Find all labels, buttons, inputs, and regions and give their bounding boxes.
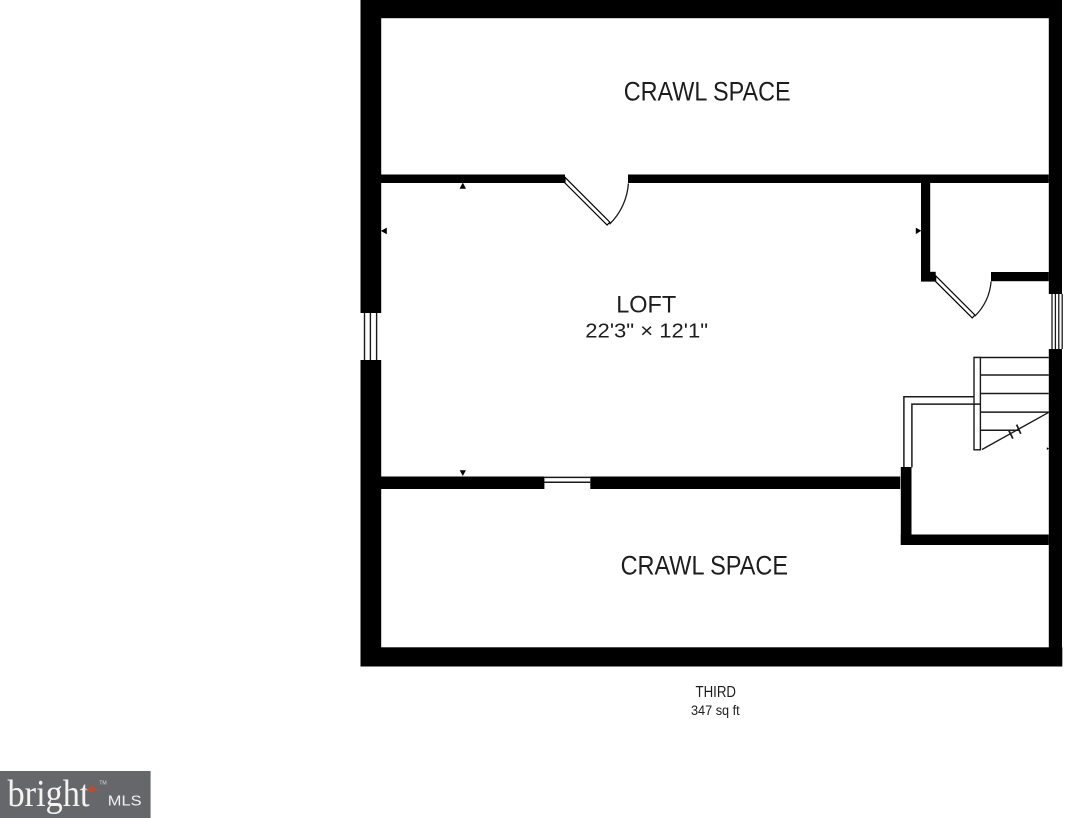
svg-text:347 sq ft: 347 sq ft: [691, 703, 740, 718]
svg-text:CRAWL SPACE: CRAWL SPACE: [624, 77, 791, 107]
svg-text:THIRD: THIRD: [696, 684, 737, 701]
svg-text:22'3" × 12'1": 22'3" × 12'1": [585, 321, 708, 343]
svg-text:TM: TM: [99, 781, 107, 787]
svg-text:LOFT: LOFT: [616, 292, 676, 319]
svg-text:CRAWL SPACE: CRAWL SPACE: [621, 551, 788, 581]
svg-text:MLS: MLS: [108, 792, 142, 809]
svg-text:bright: bright: [8, 773, 90, 815]
